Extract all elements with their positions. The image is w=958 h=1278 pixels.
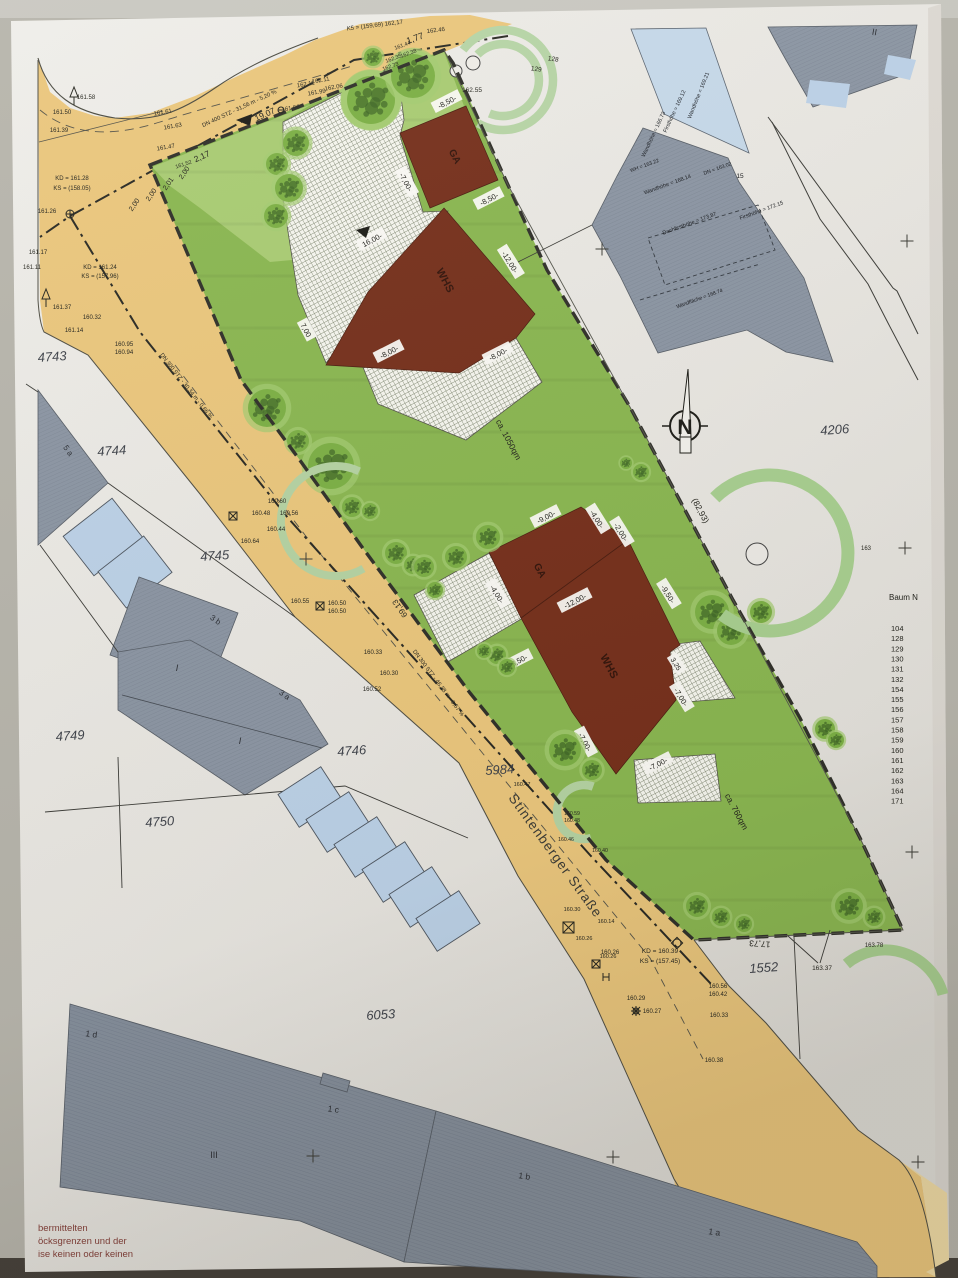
svg-text:154: 154 [891, 685, 904, 694]
svg-text:161.17: 161.17 [29, 250, 48, 256]
svg-text:1 b: 1 b [518, 1170, 531, 1182]
svg-text:161.58: 161.58 [77, 95, 96, 101]
svg-text:132: 132 [891, 675, 904, 684]
svg-text:163: 163 [861, 546, 872, 552]
svg-text:171: 171 [891, 797, 904, 806]
svg-text:162: 162 [891, 766, 904, 775]
svg-text:1 c: 1 c [327, 1103, 340, 1115]
svg-text:III: III [210, 1150, 218, 1160]
svg-text:163: 163 [891, 776, 904, 785]
svg-text:4750: 4750 [145, 813, 176, 830]
svg-text:160.48: 160.48 [252, 511, 271, 517]
svg-text:160.56: 160.56 [709, 984, 728, 990]
svg-text:4744: 4744 [97, 442, 127, 459]
svg-text:KS = (158.05): KS = (158.05) [53, 186, 90, 192]
svg-text:130: 130 [891, 654, 904, 663]
svg-text:160.33: 160.33 [710, 1013, 729, 1019]
svg-text:160: 160 [891, 746, 904, 755]
svg-text:5984: 5984 [485, 761, 515, 778]
svg-text:161.39: 161.39 [50, 128, 69, 134]
svg-text:6053: 6053 [366, 1006, 397, 1023]
svg-text:161: 161 [891, 756, 904, 765]
svg-text:Baum N: Baum N [889, 593, 918, 602]
svg-text:160.30: 160.30 [564, 907, 581, 913]
svg-text:155: 155 [891, 695, 904, 704]
svg-text:160.95: 160.95 [115, 342, 134, 348]
svg-text:4206: 4206 [820, 421, 851, 438]
svg-text:161.50: 161.50 [53, 110, 72, 116]
svg-text:KD = 161.24: KD = 161.24 [83, 265, 117, 271]
svg-text:160.26: 160.26 [601, 950, 620, 956]
svg-text:160.52: 160.52 [363, 687, 382, 693]
svg-text:4749: 4749 [55, 727, 85, 744]
svg-text:104: 104 [891, 624, 904, 633]
svg-text:163.37: 163.37 [812, 965, 832, 972]
svg-text:129: 129 [891, 644, 904, 653]
svg-text:KS = (157.45): KS = (157.45) [640, 958, 680, 965]
svg-text:157: 157 [891, 715, 904, 724]
svg-text:160.46: 160.46 [558, 837, 574, 843]
svg-text:160.40: 160.40 [592, 848, 608, 854]
svg-text:162.55: 162.55 [462, 87, 482, 94]
svg-text:bermittelten: bermittelten [38, 1223, 88, 1234]
svg-text:1552: 1552 [749, 959, 780, 976]
svg-text:159: 159 [891, 736, 904, 745]
svg-text:160.47: 160.47 [514, 782, 531, 788]
svg-text:163.78: 163.78 [865, 943, 884, 949]
svg-text:160.26: 160.26 [576, 936, 593, 942]
svg-text:N: N [677, 416, 692, 439]
svg-text:128: 128 [891, 634, 904, 643]
svg-text:160.94: 160.94 [115, 350, 134, 356]
svg-text:160.60: 160.60 [268, 499, 287, 505]
svg-text:1 a: 1 a [708, 1226, 721, 1238]
svg-text:160.27: 160.27 [643, 1009, 662, 1015]
svg-text:160.14: 160.14 [598, 919, 615, 925]
svg-text:161.14: 161.14 [65, 328, 84, 334]
svg-text:1 d: 1 d [85, 1028, 98, 1040]
svg-text:160.42: 160.42 [709, 992, 728, 998]
svg-text:160.59: 160.59 [564, 811, 580, 817]
svg-text:161.11: 161.11 [23, 265, 42, 271]
svg-text:öcksgrenzen und der: öcksgrenzen und der [38, 1236, 127, 1247]
svg-text:160.44: 160.44 [267, 527, 286, 533]
svg-text:KS = (157.96): KS = (157.96) [81, 274, 118, 280]
svg-text:158: 158 [891, 726, 904, 735]
svg-text:160.38: 160.38 [705, 1058, 724, 1064]
svg-text:160.32: 160.32 [83, 315, 102, 321]
svg-text:15: 15 [736, 173, 744, 180]
svg-text:160.50: 160.50 [328, 609, 347, 615]
svg-text:KD = 160.39: KD = 160.39 [642, 948, 679, 955]
svg-text:4743: 4743 [37, 348, 68, 365]
svg-text:160.64: 160.64 [241, 539, 260, 545]
svg-text:4745: 4745 [200, 547, 231, 564]
svg-text:161.37: 161.37 [53, 305, 72, 311]
svg-text:4746: 4746 [337, 742, 368, 759]
svg-text:160.48: 160.48 [564, 818, 580, 824]
svg-text:160.50: 160.50 [328, 601, 347, 607]
svg-text:17,73: 17,73 [749, 938, 771, 949]
svg-text:160.55: 160.55 [291, 599, 310, 605]
svg-text:131: 131 [891, 665, 904, 674]
svg-text:ise keinen oder keinen: ise keinen oder keinen [38, 1249, 133, 1260]
svg-text:164: 164 [891, 786, 904, 795]
svg-text:156: 156 [891, 705, 904, 714]
svg-text:160.56: 160.56 [280, 511, 299, 517]
svg-text:161.26: 161.26 [38, 209, 57, 215]
svg-text:160.29: 160.29 [627, 996, 646, 1002]
svg-text:KD = 161.28: KD = 161.28 [55, 176, 89, 182]
svg-text:160.33: 160.33 [364, 650, 383, 656]
svg-text:160.30: 160.30 [380, 671, 399, 677]
